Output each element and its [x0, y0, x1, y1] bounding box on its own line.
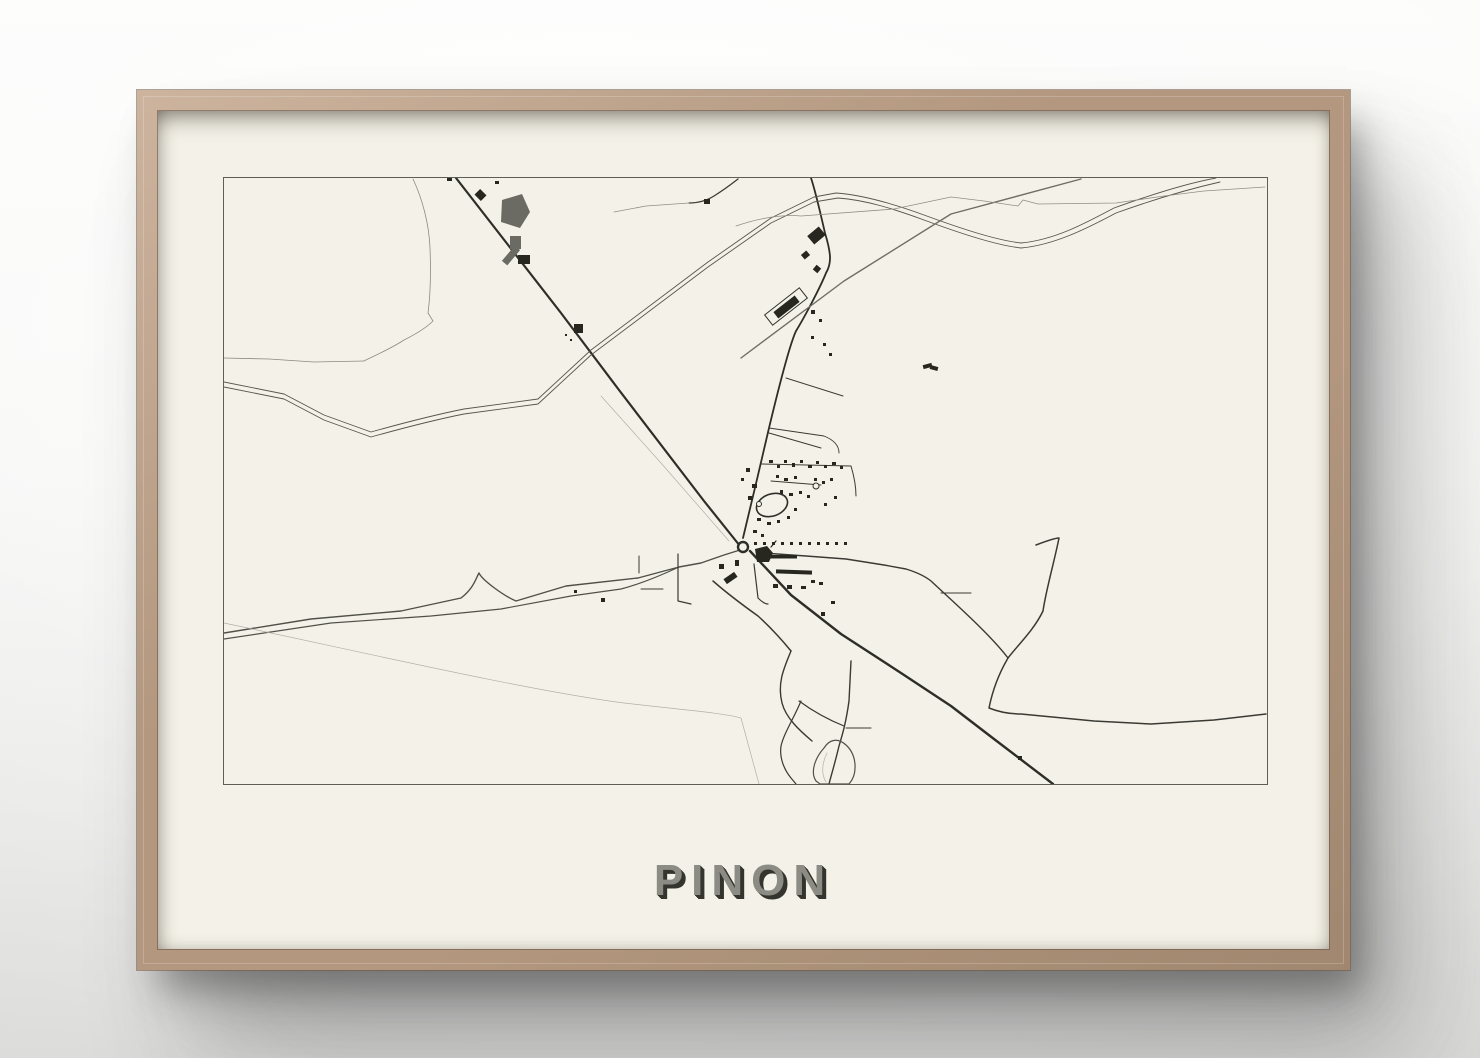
building — [565, 334, 567, 336]
building — [799, 491, 802, 494]
building — [816, 461, 819, 464]
building — [495, 181, 499, 184]
church-building — [755, 546, 773, 562]
building — [821, 612, 825, 616]
east-curvy-road — [989, 538, 1266, 724]
small-circle-north — [813, 483, 819, 489]
small-circle-west — [757, 502, 762, 507]
building — [831, 601, 835, 604]
south-center-street — [754, 564, 768, 604]
building — [824, 503, 827, 506]
building — [807, 226, 826, 244]
building — [773, 584, 778, 588]
west-road-lower — [224, 567, 679, 639]
faint-southwest-path — [224, 623, 759, 784]
poster-title: PINON — [158, 859, 1329, 903]
building — [808, 542, 811, 545]
building — [719, 564, 724, 569]
building — [777, 465, 780, 468]
faint-path-parallel — [601, 396, 729, 541]
north-cluster-street-3 — [769, 428, 839, 453]
building — [813, 265, 821, 273]
building — [752, 484, 757, 488]
building — [819, 319, 822, 322]
building — [735, 560, 739, 566]
gray-diagonal-road — [741, 179, 1081, 358]
building — [447, 178, 452, 181]
top-hook-spur — [614, 203, 689, 212]
building — [787, 585, 792, 589]
building — [830, 478, 833, 481]
building — [574, 324, 583, 333]
river — [364, 179, 433, 361]
building — [819, 582, 823, 585]
south-wiggly-road — [780, 651, 812, 741]
picture-frame: PINON — [137, 90, 1350, 970]
building — [822, 481, 825, 484]
building — [761, 534, 764, 537]
building — [767, 522, 771, 525]
building — [840, 466, 843, 469]
building — [814, 478, 817, 481]
building — [757, 518, 761, 521]
building — [769, 460, 773, 463]
building — [784, 478, 788, 481]
building — [776, 569, 812, 574]
building — [704, 199, 710, 204]
gray-pond-blob — [501, 194, 530, 228]
building — [787, 516, 790, 519]
building — [784, 460, 787, 463]
railway-line-2 — [224, 182, 1220, 437]
building — [826, 542, 829, 545]
building — [832, 462, 836, 465]
south-left-branch — [781, 701, 801, 784]
building — [823, 343, 826, 346]
building — [801, 586, 806, 589]
building — [807, 495, 810, 498]
station-side-stub — [769, 433, 821, 448]
building — [829, 353, 832, 356]
building — [574, 590, 577, 593]
building — [834, 496, 837, 499]
building — [474, 189, 486, 201]
building — [811, 310, 815, 314]
top-hook-road — [689, 179, 738, 203]
building — [824, 465, 827, 468]
building — [794, 508, 797, 511]
wall: { "scene": { "wood_light": "#cdb49e", "w… — [0, 0, 1480, 1058]
building — [1018, 756, 1022, 760]
building — [800, 460, 803, 463]
building — [777, 520, 780, 523]
building — [570, 339, 572, 341]
triangle-stub-vertical — [678, 554, 691, 604]
building — [801, 250, 810, 259]
building — [808, 465, 812, 468]
main-road-southeast — [750, 551, 1053, 784]
town-map-svg — [224, 178, 1267, 784]
building — [748, 496, 752, 500]
building — [789, 493, 793, 496]
building — [794, 476, 797, 479]
station-side-street — [786, 378, 843, 396]
building — [781, 542, 784, 545]
building — [811, 336, 814, 339]
main-straight-road — [456, 178, 740, 546]
building — [799, 542, 802, 545]
southeast-branch-road — [713, 581, 791, 651]
building — [741, 478, 744, 481]
left-thin-stream — [224, 358, 364, 362]
building — [811, 580, 815, 583]
building — [792, 463, 795, 467]
west-road-upper — [224, 550, 740, 633]
building — [776, 475, 779, 478]
building — [754, 542, 757, 545]
building — [930, 365, 939, 371]
east-street — [763, 553, 1008, 658]
pond-inner-path — [823, 753, 827, 782]
roundabout — [738, 542, 748, 552]
railway-line-1 — [224, 178, 1216, 432]
building — [769, 555, 797, 559]
building — [763, 542, 766, 545]
building — [746, 468, 750, 472]
building — [723, 572, 737, 584]
building — [790, 542, 793, 545]
south-branch — [799, 701, 844, 726]
building — [817, 542, 820, 545]
building — [601, 598, 605, 602]
building — [753, 530, 757, 533]
building — [835, 542, 838, 545]
building — [518, 255, 530, 264]
map-box — [223, 177, 1268, 785]
south-vertical-road — [829, 661, 851, 784]
building — [772, 542, 775, 545]
building — [844, 542, 847, 545]
poster-matte: PINON — [158, 111, 1329, 949]
